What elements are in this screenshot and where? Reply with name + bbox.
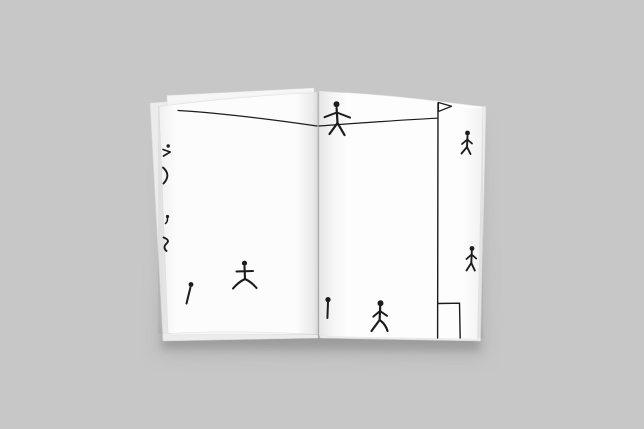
left-page — [159, 93, 318, 335]
photo-stage — [0, 0, 644, 429]
book-scene — [0, 0, 644, 429]
right-page-stack — [318, 91, 486, 341]
spine-gutter-line — [318, 93, 319, 336]
left-page-stack — [150, 88, 318, 341]
